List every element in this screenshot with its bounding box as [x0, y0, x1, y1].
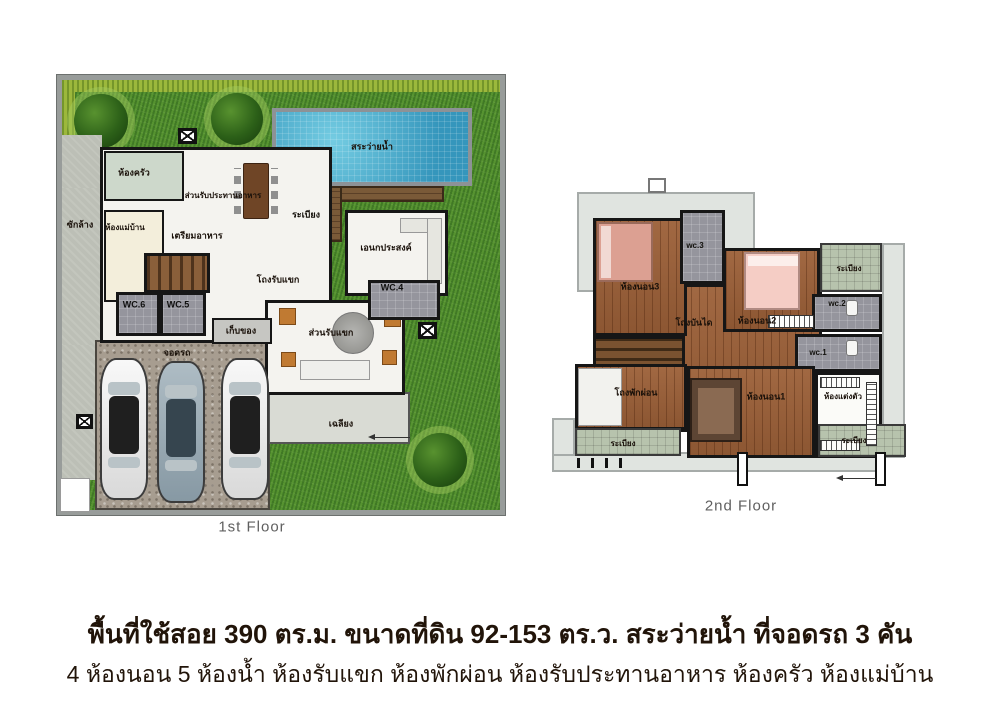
car-roof — [230, 396, 260, 454]
room-label-lounge: โถงพักผ่อน — [615, 389, 658, 398]
room-label-prep: เตรียมอาหาร — [171, 232, 222, 241]
room-label-bedroom2: ห้องนอน2 — [738, 317, 776, 326]
hedge-top — [62, 80, 500, 92]
room-label-terrace: ระเบียง — [292, 211, 320, 220]
first-floor-caption: 1st Floor — [218, 519, 285, 536]
room-label-wc1: wc.1 — [809, 349, 826, 357]
room-label-bedroom1: ห้องนอน1 — [747, 393, 785, 402]
column-symbol — [418, 322, 437, 339]
column-symbol — [76, 414, 93, 429]
plot-tick — [619, 458, 622, 468]
room-label-laundry: ซักล้าง — [67, 221, 94, 230]
dining-chairs-graphic — [271, 168, 278, 214]
wc4-room — [368, 280, 440, 320]
sofa-cushion-graphic — [382, 350, 397, 365]
bed2-pillows — [748, 256, 798, 266]
dimension-arrow — [372, 437, 410, 438]
room-label-balcony-top: ระเบียง — [837, 265, 862, 273]
room-label-pool: สระว่ายน้ำ — [351, 143, 393, 152]
tree-icon — [413, 433, 467, 487]
room-label-multipurpose: เอนกประสงค์ — [360, 244, 411, 253]
car-windshield — [229, 382, 261, 395]
car-roof — [166, 399, 196, 457]
car-rear-window — [229, 457, 261, 468]
second-floor-caption: 2nd Floor — [705, 498, 777, 515]
car-windshield — [108, 382, 140, 395]
room-label-maid: ห้องแม่บ้าน — [105, 224, 144, 232]
car-icon — [221, 358, 269, 500]
roof-vent — [648, 178, 666, 193]
tree-icon — [211, 93, 263, 145]
gate-slab — [60, 478, 90, 512]
room-label-dining: ส่วนรับประทานอาหาร — [185, 192, 261, 200]
wc-fixture — [846, 300, 858, 316]
sofa-cushion-graphic — [279, 308, 296, 325]
dressing-rack — [866, 382, 877, 446]
dressing-rack — [820, 377, 860, 388]
multipurpose-sofa-graphic — [427, 218, 442, 284]
dimension-arrow — [840, 478, 876, 479]
bed2-graphic — [744, 252, 800, 310]
car-rear-window — [108, 457, 140, 468]
bed1-mattress — [698, 388, 734, 434]
room-label-parking: จอดรถ — [164, 349, 191, 358]
staircase-first-floor — [144, 253, 210, 293]
room-label-balcony-right: ระเบียง — [842, 437, 867, 445]
plot-tick — [577, 458, 580, 468]
balcony-pillar — [737, 452, 748, 486]
room-label-balcony-left: ระเบียง — [611, 440, 636, 448]
plot-tick — [591, 458, 594, 468]
balcony-pillar — [875, 452, 886, 486]
plot-tick — [605, 458, 608, 468]
spec-line-2: 4 ห้องนอน 5 ห้องน้ำ ห้องรับแขก ห้องพักผ่… — [0, 657, 1000, 693]
car-rear-window — [165, 460, 197, 471]
room-label-living-hall: โถงรับแขก — [257, 276, 300, 285]
room-label-bedroom3: ห้องนอน3 — [621, 283, 659, 292]
room-label-wc2: wc.2 — [828, 300, 845, 308]
room-label-wc3: wc.3 — [686, 242, 703, 250]
bed1-graphic — [690, 378, 742, 442]
bed3-graphic — [597, 222, 653, 282]
room-label-wc4: WC.4 — [381, 284, 404, 293]
room-label-guest-corner: ส่วนรับแขก — [309, 329, 354, 338]
room-label-wc5: WC.5 — [167, 301, 190, 310]
car-roof — [109, 396, 139, 454]
floorplan-sheet: สระว่ายน้ำ ระเบียง ห้องครัว ส่วนรับประทา… — [0, 0, 1000, 707]
room-label-storage: เก็บของ — [226, 327, 256, 336]
wc-fixture — [846, 340, 858, 356]
bed3-pillows — [601, 226, 611, 278]
car-icon — [157, 361, 205, 503]
room-label-kitchen: ห้องครัว — [118, 169, 150, 178]
room-label-wc6: WC.6 — [123, 301, 146, 310]
sofa-cushion-graphic — [281, 352, 296, 367]
side-strip — [62, 345, 96, 480]
room-label-stair-hall: โถงบันได — [676, 319, 713, 328]
car-windshield — [165, 385, 197, 398]
room-label-dressing: ห้องแต่งตัว — [824, 393, 862, 401]
walkway-left — [552, 418, 575, 456]
spec-line-1: พื้นที่ใช้สอย 390 ตร.ม. ขนาดที่ดิน 92-15… — [0, 614, 1000, 655]
column-symbol — [178, 128, 197, 144]
car-icon — [100, 358, 148, 500]
room-label-porch: เฉลียง — [329, 420, 353, 429]
sofa-bench-graphic — [300, 360, 370, 380]
